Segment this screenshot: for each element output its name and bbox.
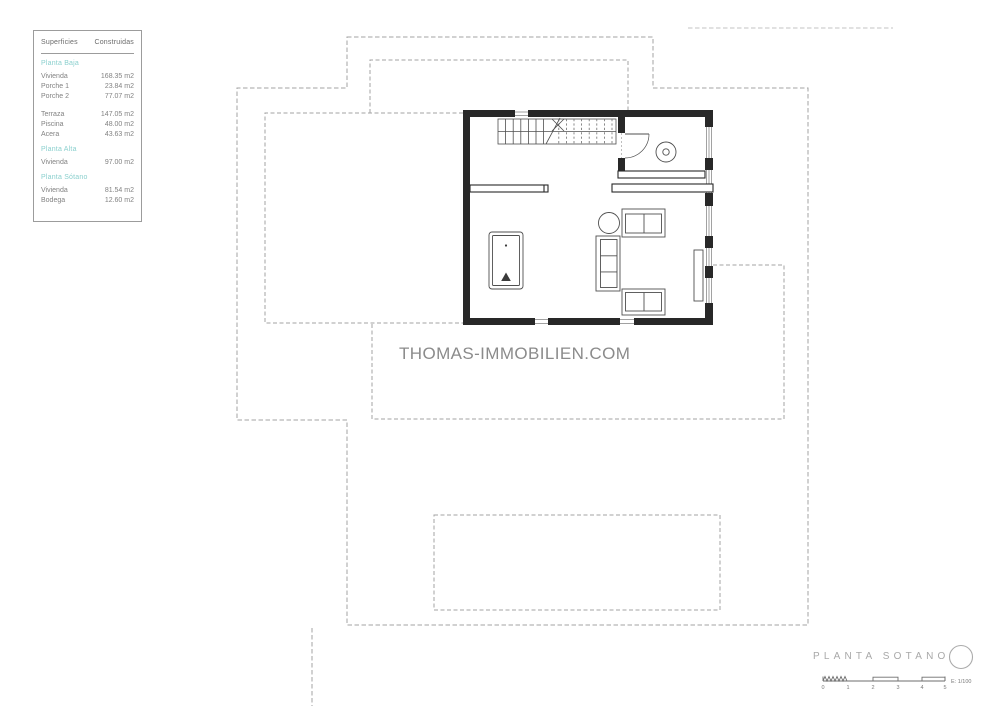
sofa-top [622,209,665,237]
building [463,110,713,325]
legend-row-label: Bodega [41,196,65,206]
scale-ratio-label: E: 1/100 [951,679,972,685]
scale-step-1 [873,677,898,681]
scale-tick-1: 1 [846,685,849,691]
round-table [599,213,620,234]
legend-row-label: Vivienda [41,158,68,168]
window-right-3 [707,206,712,236]
window-right-5 [707,278,712,303]
bathroom-door [622,133,650,158]
legend-row-label: Vivienda [41,186,68,196]
legend-row: Vivienda 97.00 m2 [41,158,134,168]
titleblock-circle [950,646,973,669]
sofa-bottom [622,289,665,315]
legend-header: Superficies Construidas [41,37,134,54]
legend-section-spacer [41,104,134,108]
legend-row: Porche 2 77.07 m2 [41,92,134,102]
staircase [498,118,616,144]
legend-row-value: 43.63 m2 [105,130,134,140]
upper-floor-outline-dashed [370,60,628,113]
legend-row-label: Porche 2 [41,92,69,102]
legend-row: Acera 43.63 m2 [41,130,134,140]
legend-row-value: 97.00 m2 [105,158,134,168]
window-right-4 [707,248,712,266]
legend-section-planta-sotano: Planta Sótano [41,174,134,183]
legend-row-value: 23.84 m2 [105,82,134,92]
furniture [489,209,703,315]
scale-tick-5: 5 [943,685,946,691]
parcel-boundary-dashed [237,28,893,706]
pool-outline-dashed [434,515,720,610]
terrace-left [265,113,463,323]
watermark-text: THOMAS-IMMOBILIEN.COM [399,344,619,364]
scale-zigzag [823,677,847,682]
legend-section-planta-baja: Planta Baja [41,60,134,69]
surface-areas-table: Superficies Construidas Planta Baja Vivi… [33,30,142,222]
legend-row-value: 168.35 m2 [101,72,134,82]
legend-row-label: Porche 1 [41,82,69,92]
legend-row-label: Acera [41,130,59,140]
scale-tick-3: 3 [896,685,899,691]
billiard-table [489,232,523,289]
bathroom-fixture [656,142,676,162]
legend-header-superficies: Superficies [41,39,78,46]
sideboard [694,250,703,301]
legend-row-value: 12.60 m2 [105,196,134,206]
interior-walls [470,171,713,192]
legend-section-planta-alta: Planta Alta [41,146,134,155]
scale-bar [823,677,945,682]
scale-tick-0: 0 [821,685,824,691]
window-right-1 [707,127,712,158]
parcel-outline [237,37,808,625]
legend-row: Terraza 147.05 m2 [41,110,134,120]
sofa-left [596,236,620,291]
legend-row-value: 147.05 m2 [101,110,134,120]
plan-title: PLANTA SOTANO [813,651,949,662]
legend-row: Porche 1 23.84 m2 [41,82,134,92]
scale-tick-2: 2 [871,685,874,691]
legend-row-label: Piscina [41,120,64,130]
terrace-lower [372,265,784,419]
legend-row: Vivienda 81.54 m2 [41,186,134,196]
legend-row-label: Vivienda [41,72,68,82]
scale-step-2 [922,677,945,681]
floor-plan-page: 0 1 2 3 4 5 E: 1/100 Superficies Constru… [0,0,1000,706]
legend-row-value: 81.54 m2 [105,186,134,196]
exterior-walls [463,110,713,325]
legend-header-construidas: Construidas [94,39,134,46]
legend-row: Bodega 12.60 m2 [41,196,134,206]
legend-row: Vivienda 168.35 m2 [41,72,134,82]
legend-row: Piscina 48.00 m2 [41,120,134,130]
legend-row-value: 77.07 m2 [105,92,134,102]
scale-tick-4: 4 [920,685,923,691]
stair-break-line [546,118,560,144]
pool [434,515,720,610]
legend-row-value: 48.00 m2 [105,120,134,130]
legend-row-label: Terraza [41,110,64,120]
